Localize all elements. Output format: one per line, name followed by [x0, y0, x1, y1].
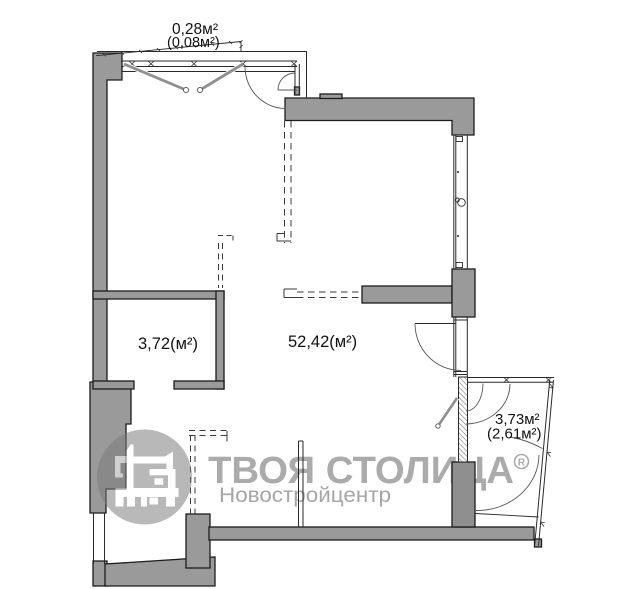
svg-text:(2,61м²): (2,61м²)	[487, 426, 542, 443]
svg-text:(0,08м²): (0,08м²)	[167, 35, 220, 51]
svg-text:Новостройцентр: Новостройцентр	[219, 484, 391, 507]
svg-text:52,42(м²): 52,42(м²)	[288, 333, 357, 351]
svg-text:R: R	[518, 458, 526, 469]
svg-text:3,72(м²): 3,72(м²)	[138, 335, 198, 353]
